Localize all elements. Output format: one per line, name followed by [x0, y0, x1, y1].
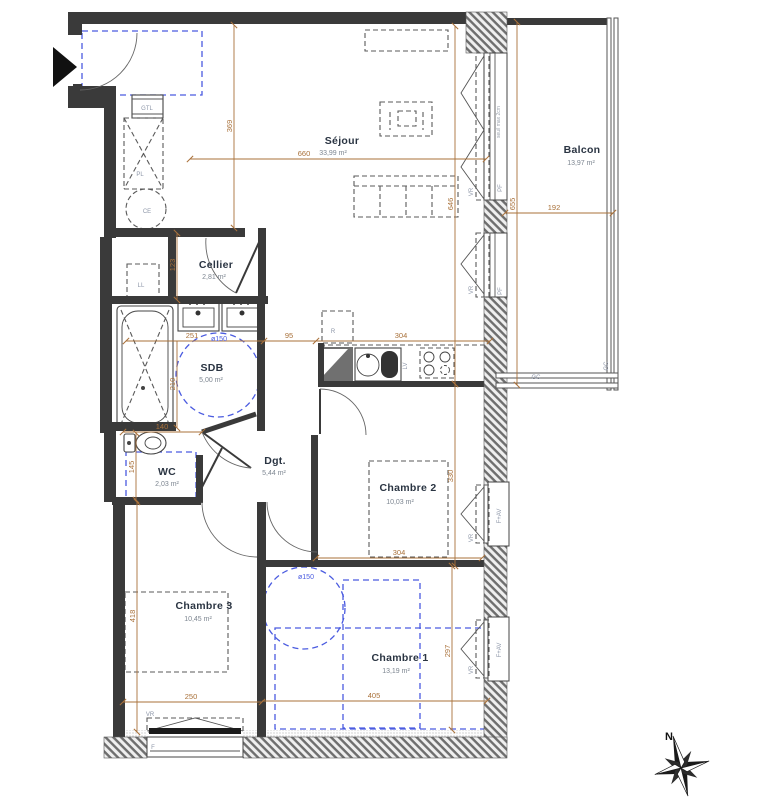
doors	[80, 33, 366, 557]
dim-251: 251	[186, 331, 199, 340]
dim-123: 123	[168, 259, 177, 272]
bed-chambre2	[369, 461, 448, 557]
dim-95: 95	[285, 331, 293, 340]
room-labels: Séjour 33,99 m² Balcon 13,97 m² Cellier …	[155, 135, 600, 675]
window-swing	[461, 235, 484, 294]
dim-145: 145	[127, 461, 136, 474]
cooktop	[420, 348, 454, 378]
label-vr: VR	[146, 712, 155, 718]
label-lv: LV	[403, 363, 409, 370]
dim-405: 405	[368, 691, 381, 700]
chambre2-door-arc	[320, 389, 366, 435]
chambre3-door-arc	[202, 502, 257, 557]
vanity-sinks	[178, 301, 263, 331]
compass-north-label: N	[665, 731, 673, 743]
label-pf: PF	[498, 287, 504, 295]
dim-192: 192	[548, 203, 561, 212]
label-gtl: GTL	[141, 106, 153, 112]
label-fav: F+AV	[497, 509, 503, 524]
dining-table-inner	[398, 111, 416, 126]
dim-418: 418	[128, 610, 137, 623]
label-diameter-150: ø150	[211, 336, 227, 343]
sdb-turning-circle	[176, 333, 260, 417]
label-pf: PF	[498, 184, 504, 192]
wc-door-leaf	[201, 448, 222, 489]
room-chambre1: Chambre 1	[372, 652, 429, 664]
label-gc: GC	[604, 361, 610, 371]
room-sdb-area: 5,00 m²	[199, 377, 223, 384]
furniture-gray	[125, 30, 458, 672]
label-fav: F+AV	[497, 643, 503, 658]
room-cellier-area: 2,81 m²	[202, 274, 226, 281]
label-seuil: seuil max 2cm	[496, 106, 502, 138]
dim-210: 210	[168, 378, 177, 391]
chambre1-zone-b	[275, 628, 485, 729]
room-chambre3: Chambre 3	[176, 600, 233, 612]
label-vr: VR	[469, 533, 475, 542]
entrance-arrow	[53, 47, 77, 87]
room-balcon: Balcon	[564, 144, 601, 156]
fridge-slot	[322, 311, 353, 343]
dim-304-bottom: 304	[393, 548, 406, 557]
window-swing	[461, 487, 484, 541]
label-diameter-150: ø150	[298, 574, 314, 581]
cellier-door-leaf	[236, 240, 260, 293]
label-gc: GC	[532, 375, 542, 381]
label-vr: VR	[469, 665, 475, 674]
window-swing	[461, 56, 484, 130]
dim-297: 297	[443, 645, 452, 658]
room-chambre1-area: 13,19 m²	[382, 668, 410, 675]
room-chambre2: Chambre 2	[380, 482, 437, 494]
dining-table	[380, 102, 432, 136]
dim-369: 369	[225, 120, 234, 133]
room-wc: WC	[158, 466, 176, 478]
sink-drainer	[381, 351, 398, 378]
room-sdb: SDB	[200, 362, 223, 374]
floor-plan: 369 660 646 655 192 123 251 95 304 210 1…	[0, 0, 758, 800]
dim-655: 655	[508, 198, 517, 211]
room-chambre2-area: 10,03 m²	[386, 499, 414, 506]
toilet	[124, 432, 166, 454]
room-wc-area: 2,03 m²	[155, 481, 179, 488]
room-balcon-area: 13,97 m²	[567, 160, 595, 167]
room-cellier: Cellier	[199, 259, 233, 271]
dim-250: 250	[185, 692, 198, 701]
bathtub	[117, 306, 173, 428]
room-sejour: Séjour	[325, 135, 359, 147]
sdb-door-leaf	[202, 432, 251, 468]
label-vr: VR	[469, 187, 475, 196]
label-ce: CE	[143, 209, 151, 215]
room-dgt-area: 5,44 m²	[262, 470, 286, 477]
compass-rose: N	[647, 729, 716, 800]
dim-304-top: 304	[395, 331, 408, 340]
label-f: F	[151, 745, 155, 751]
kitchen	[320, 345, 484, 381]
floor-plan-svg: 369 660 646 655 192 123 251 95 304 210 1…	[0, 0, 758, 800]
washing-machine-slot	[127, 264, 159, 298]
entry-zone	[82, 31, 202, 95]
label-fridge: R	[331, 329, 336, 335]
chambre1-door-arc	[267, 502, 317, 552]
dim-140: 140	[156, 422, 169, 431]
label-vr: VR	[469, 285, 475, 294]
dim-646: 646	[446, 198, 455, 211]
sideboard	[365, 30, 448, 51]
room-sejour-area: 33,99 m²	[319, 150, 347, 157]
fenetre-chambre3	[147, 717, 243, 757]
label-pl: PL	[136, 172, 144, 178]
label-ll: LL	[138, 283, 145, 289]
room-dgt: Dgt.	[264, 455, 286, 467]
dim-330: 330	[446, 470, 455, 483]
dim-660: 660	[298, 149, 311, 158]
entrance-door-arc	[80, 33, 137, 90]
room-chambre3-area: 10,45 m²	[184, 616, 212, 623]
